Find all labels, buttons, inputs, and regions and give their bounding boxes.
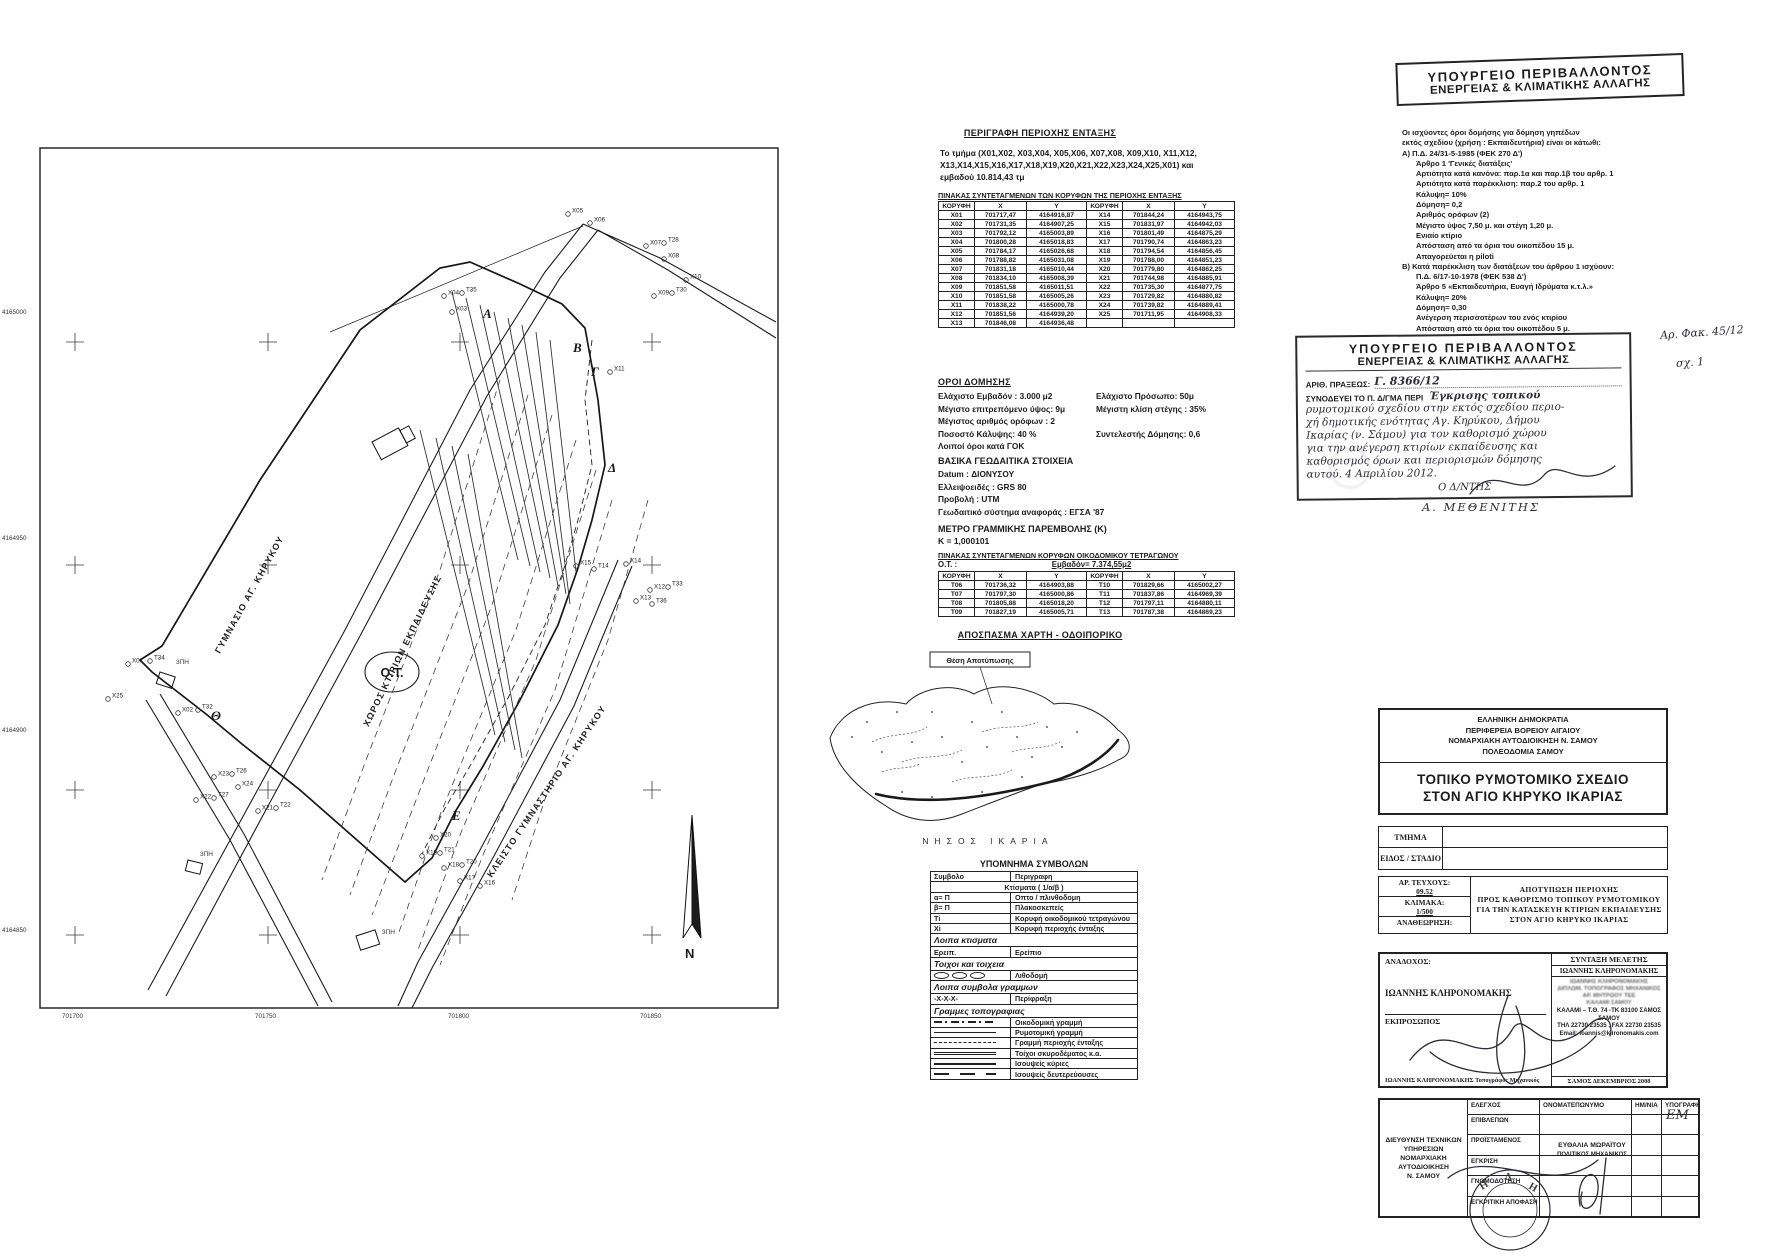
table-row: X11701838,224165000,78 X24701739,8241648… bbox=[939, 301, 1235, 310]
coastal-road bbox=[876, 740, 1118, 800]
subject-lines: ΑΠΟΤΥΠΩΣΗ ΠΕΡΙΟΧΗΣΠΡΟΣ ΚΑΘΟΡΙΣΜΟ ΤΟΠΙΚΟΥ… bbox=[1471, 877, 1667, 933]
svg-text:X23: X23 bbox=[218, 771, 230, 778]
table-row: ΕΠΙΒΛΕΠΩΝ bbox=[1468, 1115, 1698, 1135]
svg-text:Γ: Γ bbox=[590, 364, 599, 379]
table-row: X04701800,284165018,83 X17701790,7441648… bbox=[939, 238, 1235, 247]
survey-point: T34 bbox=[148, 655, 166, 664]
svg-text:X14: X14 bbox=[630, 558, 642, 565]
legend-symbol bbox=[931, 1069, 1011, 1078]
building-terms-line: Αρτιότητα κατά κανόνα: παρ.1α και παρ.1β… bbox=[1416, 169, 1670, 179]
svg-text:T28: T28 bbox=[668, 237, 679, 244]
terrain-squiggles bbox=[872, 722, 1060, 782]
svg-text:X09: X09 bbox=[658, 290, 670, 297]
table-row: X07701831,184165010,44 X20701779,8041648… bbox=[939, 265, 1235, 274]
svg-text:X18: X18 bbox=[448, 862, 460, 869]
perigrafi-title: ΠΕΡΙΓΡΑΦΗ ΠΕΡΙΟΧΗΣ ΕΝΤΑΞΗΣ bbox=[890, 128, 1190, 138]
building-terms-line: Ανέγερση περισσοτέρων του ενός κτιρίου bbox=[1416, 313, 1670, 323]
legend-title: ΥΠΟΜΝΗΜΑ ΣΥΜΒΟΛΩΝ bbox=[930, 859, 1138, 869]
svg-text:3ΠΗ: 3ΠΗ bbox=[382, 929, 395, 936]
svg-text:Δ: Δ bbox=[607, 460, 616, 475]
coords-table: ΚΟΡΥΦΗΧ ΥΚΟΡΥΦΗ ΧΥ X01701717,474164916,8… bbox=[938, 201, 1235, 328]
geo-line: Προβολή : UTM bbox=[938, 493, 1104, 506]
survey-point: X24 bbox=[236, 781, 254, 790]
building-terms-line: Β) Κατά παρέκκλιση των διατάξεων του άρθ… bbox=[1402, 262, 1670, 272]
control-org-line: ΔΙΕΥΘΥΝΣΗ ΤΕΧΝΙΚΩΝ bbox=[1380, 1136, 1467, 1145]
org-lines: ΕΛΛΗΝΙΚΗ ΔΗΜΟΚΡΑΤΙΑΠΕΡΙΦΕΡΕΙΑ ΒΟΡΕΙΟΥ ΑΙ… bbox=[1380, 710, 1666, 763]
building-terms-line: Οι ισχύοντες όροι δομήσης για δόμηση γηπ… bbox=[1402, 128, 1670, 138]
sheet-info-block: ΑΡ. ΤΕΥΧΟΥΣ: 09.52 ΚΛΙΜΑΚΑ: 1/500 ΑΝΑΘΕΩ… bbox=[1378, 876, 1668, 934]
svg-text:4165000: 4165000 bbox=[2, 309, 27, 316]
table-row: X01701717,474164916,87 X14701844,2441649… bbox=[939, 211, 1235, 220]
svg-text:701800: 701800 bbox=[448, 1013, 470, 1020]
round-approval-stamp-icon: Η Δ Η bbox=[1430, 1148, 1620, 1254]
eidos-value bbox=[1443, 848, 1667, 869]
legend-symbol bbox=[931, 1028, 1011, 1037]
legend-symbol: β= Π bbox=[931, 903, 1011, 912]
oroi-rows: Ελάχιστο Εμβαδόν : 3.000 μ2Ελάχιστο Πρόσ… bbox=[938, 390, 1228, 453]
legend-description: Κορυφή περιοχής ένταξης bbox=[1011, 924, 1137, 933]
svg-text:X08: X08 bbox=[668, 253, 680, 260]
anadoxos-label: ΑΝΑΔΟΧΟΣ: bbox=[1385, 957, 1546, 966]
geo-line: Datum : ΔΙΟΝΥΣΟΥ bbox=[938, 468, 1104, 481]
legend-row: Λοιπα κτισματα bbox=[930, 934, 1138, 947]
svg-text:X22: X22 bbox=[200, 794, 212, 801]
building-terms-line: Ενιαίο κτίριο bbox=[1416, 231, 1670, 241]
survey-point: T30 bbox=[670, 287, 688, 296]
building-terms-line: Κάλυψη= 10% bbox=[1416, 190, 1670, 200]
legend-description: Τοίχοι σκυροδέματος κ.α. bbox=[1011, 1049, 1137, 1058]
oroi-row: Ποσοστό Κάλυψης: 40 %Συντελεστής Δόμησης… bbox=[938, 428, 1228, 441]
building-terms-line: Αρτιότητα κατά παρέκκλιση: παρ.2 του αρθ… bbox=[1416, 179, 1670, 189]
legend-row: Τοίχοι σκυροδέματος κ.α. bbox=[930, 1049, 1138, 1059]
survey-point: X15 bbox=[574, 560, 592, 569]
org-line: ΠΟΛΕΟΔΟΜΙΑ ΣΑΜΟΥ bbox=[1382, 747, 1664, 758]
control-header-row: ΕΛΕΓΧΟΣ ΟΝΟΜΑΤΕΠΩΝΥΜΟ ΗΜ/ΝΙΑ ΥΠΟΓΡΑΦΗ bbox=[1468, 1100, 1698, 1115]
svg-text:701700: 701700 bbox=[62, 1013, 84, 1020]
legend-row: Κτίσματα ( 1/α/β ) bbox=[930, 882, 1138, 892]
faint-round-stamp bbox=[1330, 448, 1370, 488]
oroi-row: Μέγιστο επιτρεπόμενο ύψος: 9μΜέγιστη κλί… bbox=[938, 403, 1228, 416]
title-block: ΕΛΛΗΝΙΚΗ ΔΗΜΟΚΡΑΤΙΑΠΕΡΙΦΕΡΕΙΑ ΒΟΡΕΙΟΥ ΑΙ… bbox=[1378, 708, 1668, 815]
grid-cross-icon bbox=[643, 333, 661, 351]
legend-description: Κορυφή οικοδομικού τετραγώνου bbox=[1011, 914, 1137, 923]
legend-row: Γραμμή περιοχής ένταξης bbox=[930, 1038, 1138, 1048]
oroi-row: Ελάχιστο Εμβαδόν : 3.000 μ2Ελάχιστο Πρόσ… bbox=[938, 390, 1228, 403]
metro-title: ΜΕΤΡΟ ΓΡΑΜΜΙΚΗΣ ΠΑΡΕΜΒΟΛΗΣ (Κ) bbox=[938, 524, 1107, 534]
parcel-boundary bbox=[140, 262, 605, 882]
building-terms-line: Π.Δ. 6/17-10-1978 (ΦΕΚ 538 Δ') bbox=[1416, 272, 1670, 282]
survey-point: T28 bbox=[662, 237, 680, 246]
oroi-title: ΟΡΟΙ ΔΟΜΗΣΗΣ bbox=[938, 377, 1011, 387]
terrain-dots bbox=[851, 711, 1078, 798]
survey-point: T33 bbox=[666, 581, 684, 590]
legend-row: Ρυμοτομική γραμμή bbox=[930, 1028, 1138, 1038]
sheet-info-left: ΑΡ. ΤΕΥΧΟΥΣ: 09.52 ΚΛΙΜΑΚΑ: 1/500 ΑΝΑΘΕΩ… bbox=[1379, 877, 1471, 933]
legend-symbol: Λοιπα συμβολα γραμμων bbox=[931, 981, 1041, 993]
legend-symbol: Συμβολο bbox=[931, 872, 1011, 881]
building-terms-line: Άρθρο 5 «Εκπαιδευτήρια, Ευαγή Ιδρύματα κ… bbox=[1416, 282, 1670, 292]
north-arrow-icon: Ν bbox=[683, 815, 701, 961]
building-terms-line: Δόμηση= 0,30 bbox=[1416, 303, 1670, 313]
engineer-stamp-line: ΙΩΑΝΝΗΣ ΚΛΗΡΟΝΟΜΑΚΗΣ bbox=[1552, 979, 1666, 986]
survey-point: X17 bbox=[458, 875, 476, 884]
vertex-letters: ΑΒΓΔΕΘ bbox=[211, 306, 616, 823]
perigrafi-text: Το τμήμα (Χ01,Χ02, Χ03,Χ04, Χ05,Χ06, Χ07… bbox=[940, 147, 1202, 183]
legend-description: Οικοδομική γραμμή bbox=[1011, 1018, 1137, 1027]
klimaka-cell: ΚΛΙΜΑΚΑ: 1/500 bbox=[1379, 897, 1470, 917]
legend-row: Xi Κορυφή περιοχής ένταξης bbox=[930, 924, 1138, 934]
svg-text:X20: X20 bbox=[440, 832, 452, 839]
axis-labels-bottom: 701700701750701800701850 bbox=[62, 1013, 662, 1020]
grid-cross-icon bbox=[643, 556, 661, 574]
table-row: X09701851,584165011,51 X22701735,3041648… bbox=[939, 283, 1235, 292]
leader-line bbox=[980, 667, 992, 704]
axis-labels-left: 4165000416495041649004164850 bbox=[2, 309, 27, 934]
contractor-signature-icon bbox=[1390, 990, 1620, 1090]
ministry-stamp: ΥΠΟΥΡΓΕΙΟ ΠΕΡΙΒΑΛΛΟΝΤΟΣ ΕΝΕΡΓΕΙΑΣ & ΚΛΙΜ… bbox=[1395, 53, 1684, 106]
survey-point: X04 bbox=[442, 290, 460, 299]
legend-description: Γραμμή περιοχής ένταξης bbox=[1011, 1038, 1137, 1047]
svg-text:X25: X25 bbox=[112, 693, 124, 700]
grid-cross-group bbox=[66, 333, 661, 944]
svg-text:T32: T32 bbox=[202, 704, 213, 711]
buildings bbox=[156, 423, 416, 950]
table-row: X02701731,354164907,25 X15701831,9741649… bbox=[939, 220, 1235, 229]
svg-text:ΓΥΜΝΑΣΙΟ ΑΓ. ΚΗΡΥΚΟΥ: ΓΥΜΝΑΣΙΟ ΑΓ. ΚΗΡΥΚΟΥ bbox=[213, 534, 286, 655]
legend-symbol: Γραμμες τοπογραφιας bbox=[931, 1005, 1028, 1017]
svg-text:X02: X02 bbox=[182, 707, 194, 714]
svg-text:4164900: 4164900 bbox=[2, 727, 27, 734]
line-symbol-icon bbox=[934, 1073, 996, 1075]
legend-row: β= Π Πλακοσκεπείς bbox=[930, 903, 1138, 913]
survey-point: X20 bbox=[434, 832, 452, 841]
legend-row: Συμβολο Περιγραφη bbox=[930, 872, 1138, 882]
legend-row: Γραμμες τοπογραφιας bbox=[930, 1005, 1138, 1018]
metro-value: Κ = 1,000101 bbox=[938, 536, 989, 546]
legend-symbol bbox=[931, 1038, 1011, 1047]
table-row: T08701805,884165018,20 T12701797,1141648… bbox=[939, 599, 1235, 608]
survey-point: X09 bbox=[652, 290, 670, 299]
praxis-value: Γ. 8366/12 bbox=[1374, 372, 1621, 389]
oroi-row: Μέγιστος αριθμός ορόφων : 2 bbox=[938, 415, 1228, 428]
legend-row: Οικοδομική γραμμή bbox=[930, 1018, 1138, 1028]
svg-text:X01: X01 bbox=[132, 658, 144, 665]
apospasma-title: ΑΠΟΣΠΑΣΜΑ ΧΑΡΤΗ - ΟΔΟΙΠΟΡΙΚΟ bbox=[890, 630, 1190, 640]
geo-line: Ελλειψοειδές : GRS 80 bbox=[938, 481, 1104, 494]
legend-symbol: Τοιχοι και τοιχεια bbox=[931, 958, 1007, 970]
survey-point: X11 bbox=[608, 366, 625, 375]
table-row: X13701846,084164936,48 bbox=[939, 319, 1235, 328]
survey-point: T20 bbox=[460, 859, 478, 868]
survey-point: X23 bbox=[212, 771, 230, 780]
legend-description: Οπτο / πλινθοδομη bbox=[1011, 893, 1137, 902]
survey-point: X22 bbox=[194, 794, 212, 803]
terrace-hatching bbox=[420, 292, 576, 758]
syntaxi-name: ΙΩΑΝΝΗΣ ΚΛΗΡΟΝΟΜΑΚΗΣ bbox=[1552, 966, 1666, 977]
grid-cross-icon bbox=[66, 926, 84, 944]
building-terms-line: Αριθμός ορόφων (2) bbox=[1416, 210, 1670, 220]
eidos-label: ΕΙΔΟΣ / ΣΤΑΔΙΟ bbox=[1379, 848, 1443, 869]
svg-text:Ε: Ε bbox=[451, 808, 461, 823]
svg-text:T26: T26 bbox=[236, 768, 247, 775]
svg-text:X07: X07 bbox=[650, 240, 662, 247]
oroi-row: Λοιποί όροι κατά ΓΟΚ bbox=[938, 440, 1228, 453]
grid-cross-icon bbox=[643, 781, 661, 799]
line-symbol-icon bbox=[934, 1052, 996, 1055]
legend-description: Περιγραφη bbox=[1011, 872, 1137, 881]
survey-point: X07 bbox=[644, 240, 662, 249]
grid-cross-icon bbox=[259, 781, 277, 799]
grid-cross-icon bbox=[643, 926, 661, 944]
table-row: X08701834,104165008,39 X21701744,9841648… bbox=[939, 274, 1235, 283]
svg-text:T35: T35 bbox=[466, 287, 477, 294]
masonry-symbol-icon bbox=[934, 972, 985, 979]
coords-table-header: ΚΟΡΥΦΗΧ ΥΚΟΡΥΦΗ ΧΥ bbox=[939, 202, 1235, 211]
tmima-row: ΤΜΗΜΑ bbox=[1378, 826, 1668, 848]
svg-text:X04: X04 bbox=[448, 290, 460, 297]
svg-text:Α: Α bbox=[482, 306, 492, 321]
legend-symbol: α= Π bbox=[931, 893, 1011, 902]
survey-point: X25 bbox=[106, 693, 124, 702]
svg-text:X11: X11 bbox=[614, 366, 625, 373]
table-row: T06701736,324164903,88 T10701829,6641650… bbox=[939, 581, 1235, 590]
line-symbol-icon bbox=[934, 1021, 996, 1023]
survey-point: X01 bbox=[126, 658, 144, 667]
table-row: X03701792,124165003,89 X16701801,4941648… bbox=[939, 229, 1235, 238]
sheet-note: σχ. 1 bbox=[1676, 355, 1705, 370]
svg-text:Δ: Δ bbox=[1505, 1172, 1512, 1183]
svg-text:X24: X24 bbox=[242, 781, 254, 788]
survey-point: X05 bbox=[566, 208, 584, 217]
survey-point: T14 bbox=[592, 563, 610, 572]
subject-line: ΠΡΟΣ ΚΑΘΟΡΙΣΜΟ ΤΟΠΙΚΟΥ ΡΥΜΟΤΟΜΙΚΟΥ bbox=[1471, 895, 1667, 905]
svg-text:Η: Η bbox=[1478, 1179, 1491, 1193]
svg-text:Β: Β bbox=[572, 340, 582, 355]
coords-table-title: ΠΙΝΑΚΑΣ ΣΥΝΤΕΤΑΓΜΕΝΩΝ ΤΩΝ ΚΟΡΥΦΩΝ ΤΗΣ ΠΕ… bbox=[938, 191, 1182, 200]
klimaka-value: 1/500 bbox=[1416, 907, 1433, 916]
anatheorisi-label: ΑΝΑΘΕΩΡΗΣΗ: bbox=[1397, 918, 1452, 927]
survey-point: X19 bbox=[420, 850, 438, 859]
grid-cross-icon bbox=[66, 781, 84, 799]
svg-text:X10: X10 bbox=[690, 274, 702, 281]
ar-tefxous-label: ΑΡ. ΤΕΥΧΟΥΣ: bbox=[1399, 878, 1450, 887]
legend-symbol: Τi bbox=[931, 914, 1011, 923]
legend-description: Ρυμοτομική γραμμή bbox=[1011, 1028, 1137, 1037]
island-outline bbox=[830, 687, 1129, 821]
subject-line: ΑΠΟΤΥΠΩΣΗ ΠΕΡΙΟΧΗΣ bbox=[1471, 885, 1667, 895]
legend-symbol: -Χ-Χ-Χ- bbox=[931, 994, 1011, 1003]
legend-symbol: Ερειπ. bbox=[931, 947, 1011, 956]
survey-point: X18 bbox=[442, 862, 460, 871]
legend-symbol bbox=[931, 1059, 1011, 1068]
svg-text:T22: T22 bbox=[280, 802, 291, 809]
svg-text:X15: X15 bbox=[580, 560, 592, 567]
legend-row: Λοιπα συμβολα γραμμων bbox=[930, 981, 1138, 994]
approval-stamp-header: ΥΠΟΥΡΓΕΙΟ ΠΕΡΙΒΑΛΛΟΝΤΟΣ ΕΝΕΡΓΕΙΑΣ & ΚΛΙΜ… bbox=[1305, 339, 1621, 371]
legend-row: Λιθοδομή bbox=[930, 971, 1138, 981]
svg-text:Η: Η bbox=[1527, 1181, 1540, 1195]
org-line: ΝΟΜΑΡΧΙΑΚΗ ΑΥΤΟΔΙΟΙΚΗΣΗ Ν. ΣΑΜΟΥ bbox=[1382, 736, 1664, 747]
legend-table: Συμβολο Περιγραφη Κτίσματα ( 1/α/β ) α= … bbox=[930, 871, 1138, 1080]
legend-row: Τοιχοι και τοιχεια bbox=[930, 958, 1138, 971]
subject-line: ΣΤΟΝ ΑΓΙΟ ΚΗΡΥΚΟ ΙΚΑΡΙΑΣ bbox=[1471, 915, 1667, 925]
building-terms-line: Α) Π.Δ. 24/31-5-1985 (ΦΕΚ 270 Δ') bbox=[1402, 149, 1670, 159]
ar-tefxous-cell: ΑΡ. ΤΕΥΧΟΥΣ: 09.52 bbox=[1379, 877, 1470, 897]
syntaxi-label: ΣΥΝΤΑΞΗ ΜΕΛΕΤΗΣ bbox=[1552, 954, 1666, 966]
building-terms-line: Δόμηση= 0,2 bbox=[1416, 200, 1670, 210]
survey-point: T21 bbox=[438, 847, 456, 856]
survey-point: X03 bbox=[450, 306, 468, 315]
grid-cross-icon bbox=[259, 926, 277, 944]
tmima-label: ΤΜΗΜΑ bbox=[1379, 827, 1443, 847]
survey-point: X13 bbox=[634, 595, 652, 604]
svg-text:T36: T36 bbox=[656, 598, 667, 605]
grid-cross-icon bbox=[66, 333, 84, 351]
area-label: Εμβαδόν= 7.374,55μ2 bbox=[957, 560, 1226, 569]
survey-point: X02 bbox=[176, 707, 194, 716]
legend-symbol bbox=[931, 1049, 1011, 1058]
location-sketch-map: Θέση Αποτύπωσης ΝΗΣΟΣ ΙΚΑΡΙΑ bbox=[812, 642, 1157, 854]
grid-cross-icon bbox=[66, 556, 84, 574]
svg-text:T20: T20 bbox=[466, 859, 477, 866]
legend-description: Ισουψείς δευτερεύουσες bbox=[1011, 1070, 1137, 1079]
ot-label: Ο.Τ. : bbox=[938, 560, 957, 569]
legend-symbol bbox=[931, 971, 1011, 980]
svg-text:T33: T33 bbox=[672, 581, 683, 588]
svg-text:X05: X05 bbox=[572, 208, 584, 215]
project-title: ΤΟΠΙΚΟ ΡΥΜΟΤΟΜΙΚΟ ΣΧΕΔΙΟΣΤΟΝ ΑΓΙΟ ΚΗΡΥΚΟ… bbox=[1380, 763, 1666, 813]
svg-text:701850: 701850 bbox=[640, 1013, 662, 1020]
praxis-row: ΑΡΙΘ. ΠΡΑΞΕΩΣ: Γ. 8366/12 bbox=[1306, 372, 1622, 389]
survey-point: T22 bbox=[274, 802, 292, 811]
survey-point: T27 bbox=[212, 792, 230, 801]
building-terms-line: Άρθρο 1 'Γενικές διατάξεις' bbox=[1416, 159, 1670, 169]
legend-row: -Χ-Χ-Χ- Περίφραξη bbox=[930, 994, 1138, 1004]
building-terms-line: Κάλυψη= 20% bbox=[1416, 293, 1670, 303]
svg-text:3ΠΗ: 3ΠΗ bbox=[176, 659, 189, 666]
col-header-date: ΗΜ/ΝΙΑ bbox=[1632, 1100, 1662, 1114]
legend-symbol: Xi bbox=[931, 924, 1011, 933]
signature-initials: ΕΜ bbox=[1666, 1108, 1689, 1123]
geo-lines: Datum : ΔΙΟΝΥΣΟΥΕλλειψοειδές : GRS 80Προ… bbox=[938, 468, 1104, 518]
legend-description: Ισουψείς κύριες bbox=[1011, 1059, 1137, 1068]
location-callout-label: Θέση Αποτύπωσης bbox=[946, 656, 1014, 665]
table-row: T07701797,304165000,86 T11701837,8641649… bbox=[939, 590, 1235, 599]
project-title-line: ΣΤΟΝ ΑΓΙΟ ΚΗΡΥΚΟ ΙΚΑΡΙΑΣ bbox=[1382, 788, 1664, 805]
folder-note: Αρ. Φακ. 45/12 bbox=[1660, 323, 1744, 342]
svg-text:T27: T27 bbox=[218, 792, 229, 799]
legend-description: Περίφραξη bbox=[1011, 994, 1137, 1003]
legend-description: Λιθοδομή bbox=[1011, 971, 1137, 980]
svg-text:X16: X16 bbox=[484, 880, 496, 887]
klimaka-label: ΚΛΙΜΑΚΑ: bbox=[1405, 898, 1445, 907]
table-row: X06701788,824165031,08 X19701788,0041648… bbox=[939, 256, 1235, 265]
eidos-row: ΕΙΔΟΣ / ΣΤΑΔΙΟ bbox=[1378, 848, 1668, 870]
svg-text:T14: T14 bbox=[598, 563, 609, 570]
survey-point: X12 bbox=[648, 584, 666, 593]
building-terms-line: Απόσταση από τα όρια του οικοπέδου 15 μ. bbox=[1416, 241, 1670, 251]
site-plan-map: Ο.Τ. Ν 4165000416495041649004164850 7017… bbox=[0, 0, 800, 1030]
col-header-name: ΟΝΟΜΑΤΕΠΩΝΥΜΟ bbox=[1540, 1100, 1632, 1114]
signer-name: Α. ΜΕΘΕΝΙΤΗΣ bbox=[1422, 500, 1540, 514]
legend-row: Ερειπ. Ερείπιο bbox=[930, 947, 1138, 957]
table-row: X05701784,174165026,68 X18701794,5441648… bbox=[939, 247, 1235, 256]
legend-symbol: Λοιπα κτισματα bbox=[931, 934, 1000, 946]
road-labels: ΓΥΜΝΑΣΙΟ ΑΓ. ΚΗΡΥΚΟΥΚΛΕΙΣΤΟ ΓΥΜΝΑΣΤΗΡΙΟ … bbox=[213, 534, 608, 879]
org-line: ΕΛΛΗΝΙΚΗ ΔΗΜΟΚΡΑΤΙΑ bbox=[1382, 715, 1664, 726]
svg-text:X19: X19 bbox=[426, 850, 438, 857]
org-line: ΠΕΡΙΦΕΡΕΙΑ ΒΟΡΕΙΟΥ ΑΙΓΑΙΟΥ bbox=[1382, 726, 1664, 737]
survey-point: X14 bbox=[624, 558, 642, 567]
building-terms-block: Οι ισχύοντες όροι δομήσης για δόμηση γηπ… bbox=[1402, 128, 1670, 334]
tmima-table: ΤΜΗΜΑ ΕΙΔΟΣ / ΣΤΑΔΙΟ bbox=[1378, 826, 1668, 870]
ot-table-subtitle: Ο.Τ. : Εμβαδόν= 7.374,55μ2 bbox=[938, 560, 1226, 569]
geo-title: ΒΑΣΙΚΑ ΓΕΩΔΑΙΤΙΚΑ ΣΤΟΙΧΕΙΑ bbox=[938, 456, 1073, 466]
line-symbol-icon bbox=[934, 1032, 996, 1033]
building-terms-line: Απαγορεύεται η piloti bbox=[1416, 252, 1670, 262]
survey-points: X01 T34 X25 X02 T32 X23 T26 X22 T27 X24 … bbox=[106, 208, 702, 889]
svg-text:X03: X03 bbox=[456, 306, 468, 313]
inner-boundary-dashed bbox=[422, 340, 592, 854]
table-row: T09701827,194165005,71 T13701787,3841648… bbox=[939, 608, 1235, 617]
geo-line: Γεωδαιτικό σύστημα αναφοράς : ΕΓΣΑ '87 bbox=[938, 506, 1104, 519]
legend-description: Κτίσματα ( 1/α/β ) bbox=[931, 883, 1137, 892]
legend-symbol bbox=[931, 1018, 1011, 1027]
legend-row: Ισουψείς κύριες bbox=[930, 1059, 1138, 1069]
anatheorisi-cell: ΑΝΑΘΕΩΡΗΣΗ: bbox=[1379, 917, 1470, 933]
legend-row: α= Π Οπτο / πλινθοδομη bbox=[930, 893, 1138, 903]
island-caption: ΝΗΣΟΣ ΙΚΑΡΙΑ bbox=[922, 836, 1053, 846]
grid-cross-icon bbox=[259, 333, 277, 351]
ar-tefxous-value: 09.52 bbox=[1416, 887, 1433, 896]
svg-text:T34: T34 bbox=[154, 655, 165, 662]
table-row: X12701851,564164939,20 X25701711,9541649… bbox=[939, 310, 1235, 319]
survey-point: T35 bbox=[460, 287, 478, 296]
praxis-label: ΑΡΙΘ. ΠΡΑΞΕΩΣ: bbox=[1306, 380, 1371, 390]
survey-point: X06 bbox=[588, 217, 606, 226]
ot-table: ΚΟΡΥΦΗΧ ΥΚΟΡΥΦΗ ΧΥ T06701736,324164903,8… bbox=[938, 571, 1235, 617]
survey-point: T26 bbox=[230, 768, 248, 777]
svg-text:T21: T21 bbox=[444, 847, 455, 854]
svg-text:X06: X06 bbox=[594, 217, 606, 224]
table-row: X10701851,584165005,26 X23701729,8241648… bbox=[939, 292, 1235, 301]
line-symbol-icon bbox=[934, 1042, 996, 1043]
svg-text:3ΠΗ: 3ΠΗ bbox=[200, 851, 213, 858]
svg-text:X12: X12 bbox=[654, 584, 666, 591]
svg-text:4164950: 4164950 bbox=[2, 535, 27, 542]
legend-description: Ερείπιο bbox=[1011, 948, 1137, 957]
svg-text:X17: X17 bbox=[464, 875, 476, 882]
legend-row: Ισουψείς δευτερεύουσες bbox=[930, 1069, 1138, 1079]
svg-text:X13: X13 bbox=[640, 595, 652, 602]
svg-text:X21: X21 bbox=[262, 805, 274, 812]
svg-text:701750: 701750 bbox=[255, 1013, 277, 1020]
north-label: Ν bbox=[685, 946, 694, 961]
tmima-value bbox=[1443, 827, 1667, 847]
svg-text:4164850: 4164850 bbox=[2, 927, 27, 934]
line-symbol-icon bbox=[934, 1063, 996, 1065]
ot-table-header: ΚΟΡΥΦΗΧ ΥΚΟΡΥΦΗ ΧΥ bbox=[939, 572, 1235, 581]
ot-table-title: ΠΙΝΑΚΑΣ ΣΥΝΤΕΤΑΓΜΕΝΩΝ ΚΟΡΥΦΩΝ ΟΙΚΟΔΟΜΙΚΟ… bbox=[938, 551, 1179, 560]
col-header-elegxos: ΕΛΕΓΧΟΣ bbox=[1468, 1100, 1540, 1114]
contour-lines bbox=[322, 380, 648, 965]
svg-text:ΧΩΡΟΣ ΚΤΙΡΙΩΝ ΕΚΠΑΙΔΕΥΣΗΣ: ΧΩΡΟΣ ΚΤΙΡΙΩΝ ΕΚΠΑΙΔΕΥΣΗΣ bbox=[361, 573, 443, 728]
legend-row: Τi Κορυφή οικοδομικού τετραγώνου bbox=[930, 914, 1138, 924]
project-title-line: ΤΟΠΙΚΟ ΡΥΜΟΤΟΜΙΚΟ ΣΧΕΔΙΟ bbox=[1382, 771, 1664, 788]
survey-point: T36 bbox=[650, 598, 668, 607]
svg-text:T30: T30 bbox=[676, 287, 687, 294]
building-terms-line: εκτός σχεδίου (χρήση : Εκπαιδευτήρια) εί… bbox=[1402, 138, 1670, 148]
